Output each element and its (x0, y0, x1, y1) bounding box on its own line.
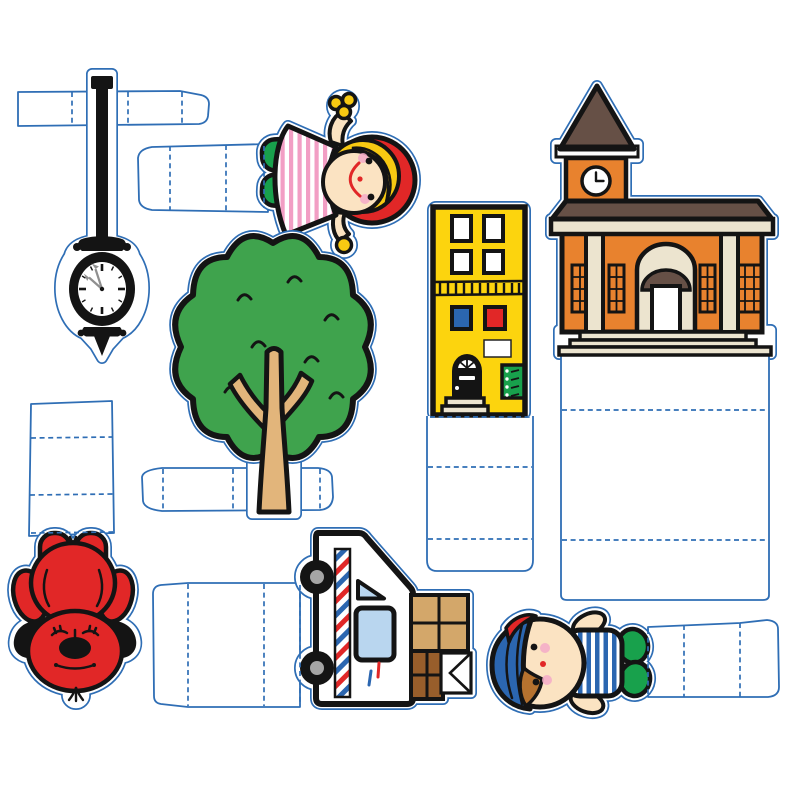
truck-airmail-stripe (335, 549, 350, 697)
schoolhouse-base-panel (561, 353, 769, 600)
fold-strip-dog (29, 401, 114, 536)
townhouse-window (484, 216, 503, 241)
girl-face (323, 151, 385, 213)
dog-nose (59, 637, 91, 659)
truck-wheel (300, 560, 334, 594)
fold-strip-truck (153, 583, 300, 707)
schoolhouse-column (586, 233, 603, 332)
townhouse-cutout (427, 207, 533, 571)
girl-cutout (261, 94, 415, 254)
fold-strip-boy (648, 620, 779, 697)
schoolhouse-clock-tower (556, 86, 638, 206)
fold-strip-girl (138, 144, 268, 212)
townhouse-window (484, 251, 503, 273)
schoolhouse-entrance (637, 244, 695, 332)
boy-mouth (540, 661, 546, 667)
red-dog-cutout (8, 532, 138, 704)
boy-eye (533, 679, 540, 686)
townhouse-cornice (434, 281, 525, 295)
schoolhouse-roof (552, 201, 772, 219)
papercraft-sheet (0, 0, 800, 800)
boy-eye (531, 644, 538, 651)
clock-top-scroll (78, 236, 126, 251)
clock-bottom-scroll (82, 327, 122, 337)
townhouse-step (442, 406, 488, 414)
fold-strip-tree (142, 468, 333, 511)
townhouse-doorknob (455, 386, 459, 390)
truck-wheel (300, 651, 334, 685)
townhouse-letterbox (459, 376, 475, 380)
schoolhouse-column (721, 233, 738, 332)
boy-cutout (492, 608, 652, 717)
clock-post-pole (96, 80, 108, 242)
townhouse-sign (484, 340, 511, 357)
schoolhouse-step (559, 347, 771, 355)
truck-envelope (441, 653, 471, 693)
girl-eye (368, 194, 375, 201)
girl-nose (357, 176, 362, 181)
townhouse-base-panel (427, 416, 533, 571)
townhouse-red-window (485, 307, 505, 329)
girl-pom (337, 238, 352, 253)
girl-eye (366, 158, 373, 165)
schoolhouse-cutout (551, 86, 773, 600)
truck-side-window (356, 608, 394, 660)
townhouse-window (452, 251, 471, 273)
townhouse-blue-window (452, 307, 471, 329)
sheet-canvas (0, 0, 800, 800)
schoolhouse-door (652, 286, 680, 332)
townhouse-buzzer-panel (502, 365, 524, 398)
townhouse-window (452, 216, 471, 241)
